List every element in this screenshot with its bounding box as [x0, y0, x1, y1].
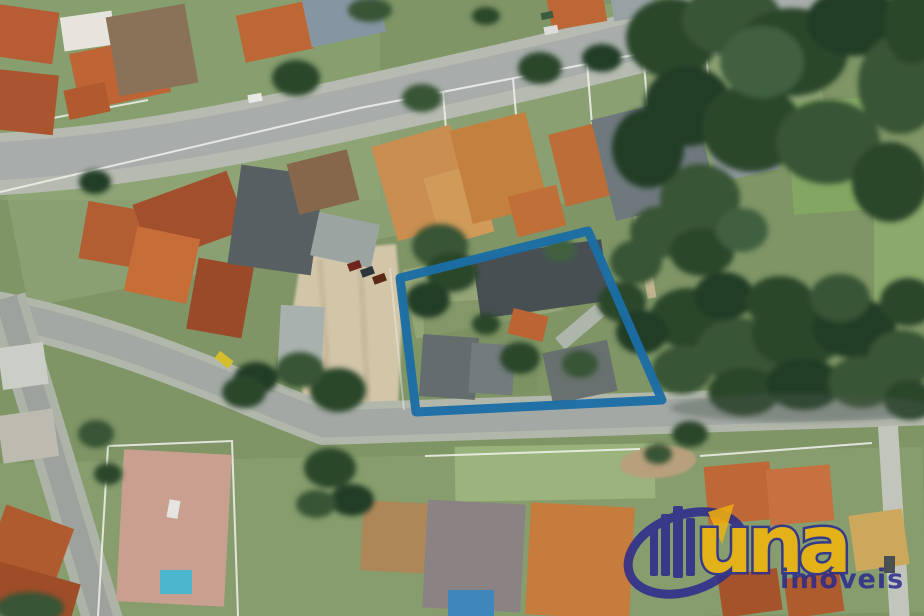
aerial-photo: una imóveis: [0, 0, 924, 616]
watermark-subtitle-text: imóveis: [780, 564, 904, 595]
swimming-pool: [448, 590, 494, 616]
aerial-scene: una imóveis: [0, 0, 924, 616]
swimming-pool: [160, 570, 192, 594]
